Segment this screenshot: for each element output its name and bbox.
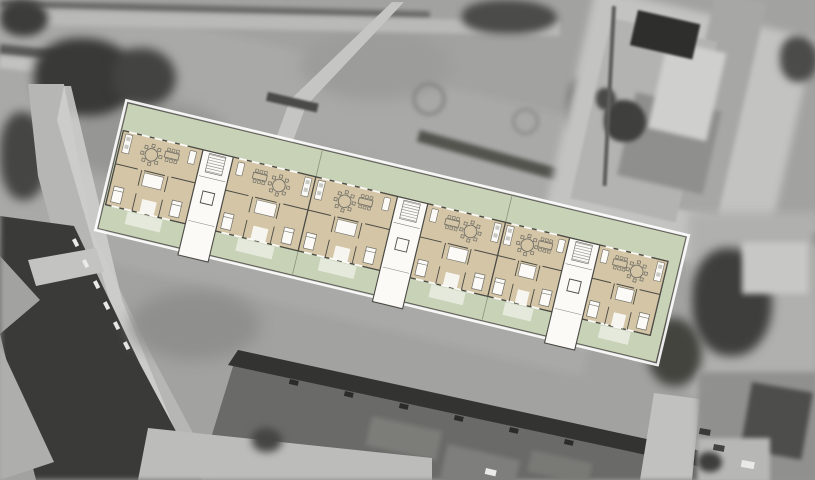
plan-frame	[94, 100, 689, 369]
floor-plan-overlay	[0, 0, 815, 480]
aerial-site-plan	[0, 0, 815, 480]
